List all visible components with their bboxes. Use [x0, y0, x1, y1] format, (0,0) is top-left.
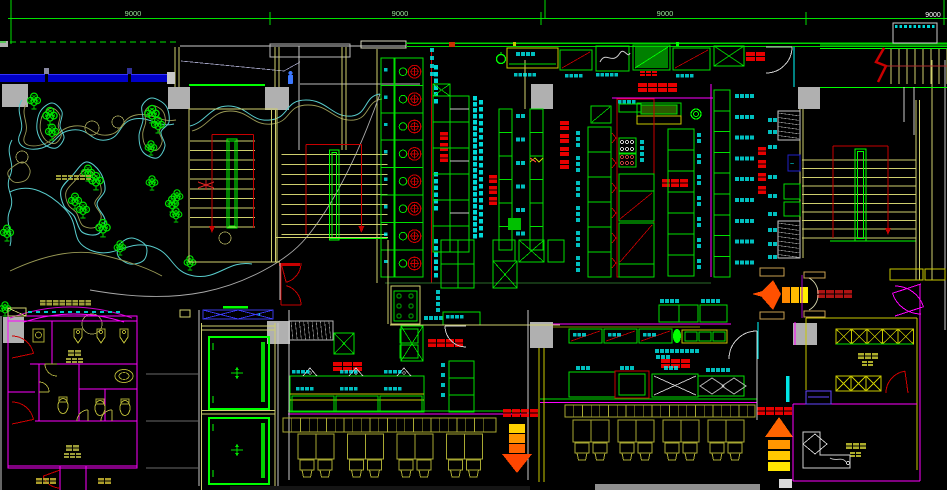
svg-text:*: * [258, 313, 261, 320]
svg-text:~: ~ [790, 161, 794, 168]
svg-text:9000: 9000 [925, 12, 941, 19]
svg-text:9000: 9000 [392, 9, 409, 18]
svg-text:9000: 9000 [125, 9, 142, 18]
svg-text:9000: 9000 [657, 9, 674, 18]
